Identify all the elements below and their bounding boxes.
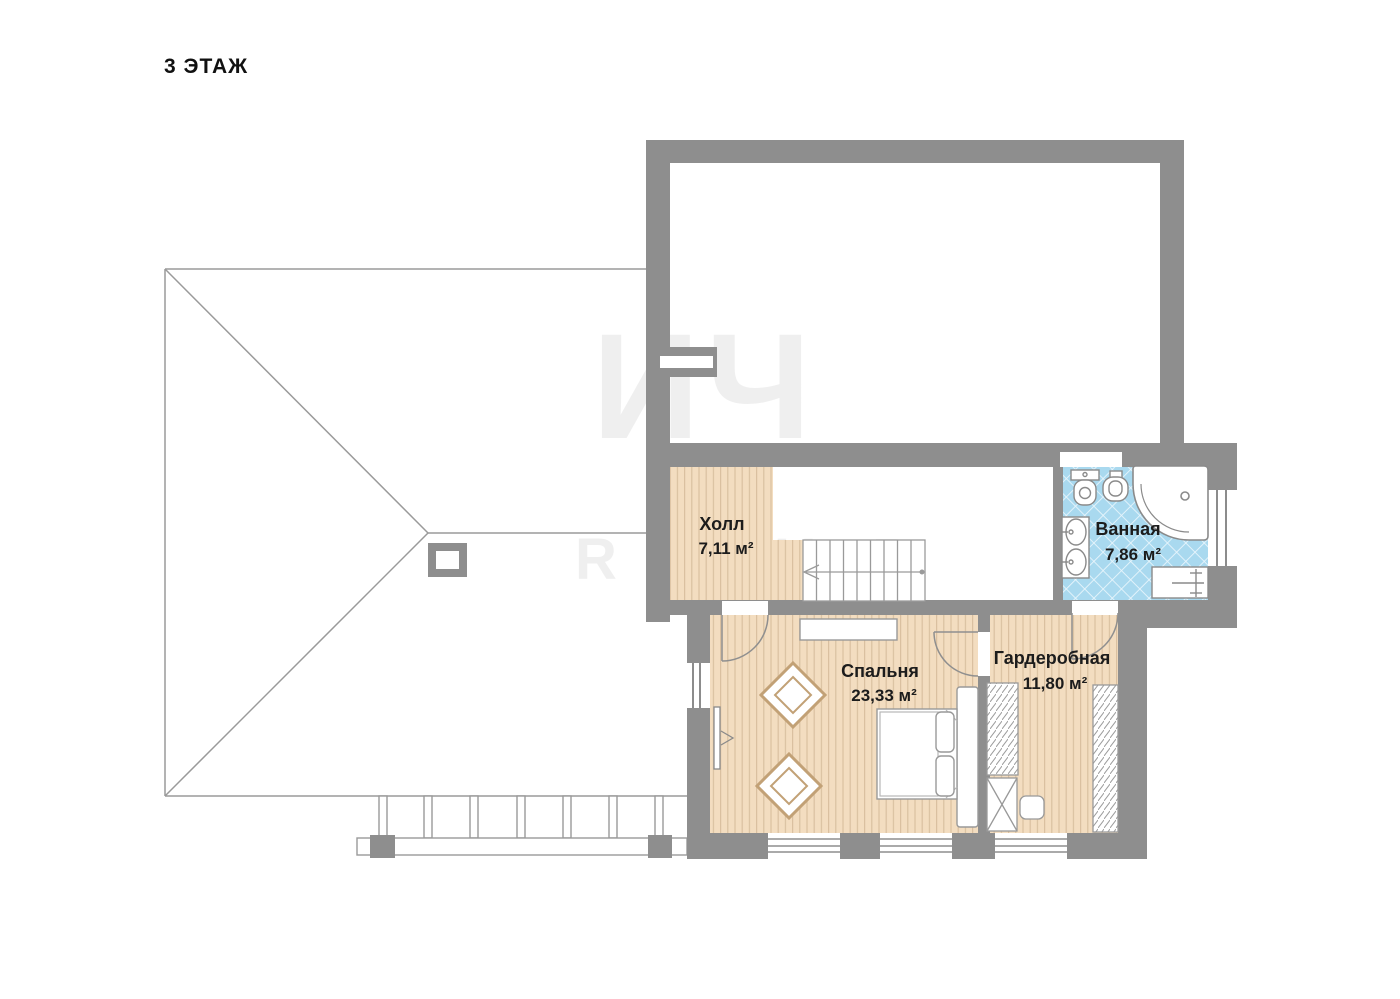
hall-label: Холл [699,514,744,534]
floor-plan-drawing: Холл 7,11 м² Ванная 7,86 м² Спальня 23,3… [0,0,1400,999]
floor-plan-canvas: 3 ЭТАЖ ИЧ R O U P [0,0,1400,999]
dresser [800,619,897,640]
roof-outline [165,269,687,796]
shower-area [1152,567,1208,598]
bedroom-area: 23,33 м² [851,686,917,705]
staircase [803,540,925,601]
hall-area: 7,11 м² [698,539,753,558]
chimney [428,543,467,577]
wall-segment [687,600,710,859]
divider-door-opening [978,632,990,676]
pillow [936,756,954,796]
wall-segment [646,600,1147,615]
pillow [936,712,954,752]
wall-segment [646,140,670,622]
wall-segment [646,443,1237,467]
wardrobe-label: Гардеробная [994,648,1110,668]
bathroom-area: 7,86 м² [1105,545,1161,564]
pergola-post [424,796,432,838]
pergola-post [517,796,525,838]
clothes-rack-right [1093,685,1118,832]
cabinet [987,778,1017,831]
stool [1020,796,1044,819]
terrace-pergola [357,796,687,858]
wardrobe-door-opening [1072,601,1118,615]
roof-hip-upper [165,269,428,533]
bedroom-label: Спальня [841,661,919,681]
wall-segment [1118,613,1147,859]
pergola-post [655,796,663,838]
double-vanity [1062,517,1089,578]
window-bedroom-left [687,663,710,708]
roof-hip-lower [165,533,428,796]
pergola-post [563,796,571,838]
terrace-rail [357,838,687,855]
wall-segment [646,140,1184,163]
terrace-post-right [648,835,672,858]
window-bottom-2 [880,833,952,859]
window-bathroom-right [1208,490,1237,566]
window-bottom-3 [995,833,1067,859]
niche-opening [660,356,713,368]
terrace-post-left [370,835,395,858]
wardrobe-area: 11,80 м² [1023,674,1088,693]
window-bottom-1 [768,833,840,859]
pergola-post [379,796,387,838]
clothes-rack-left [987,683,1018,775]
toilet [1071,470,1099,505]
bathroom-label: Ванная [1095,519,1160,539]
bedroom-door-opening [722,601,768,615]
pergola-post [470,796,478,838]
hall-floor [670,467,803,601]
wall-segment [1147,600,1237,628]
pergola-post [609,796,617,838]
bathroom-top-opening [1060,452,1122,467]
wall-segment [1160,140,1184,443]
